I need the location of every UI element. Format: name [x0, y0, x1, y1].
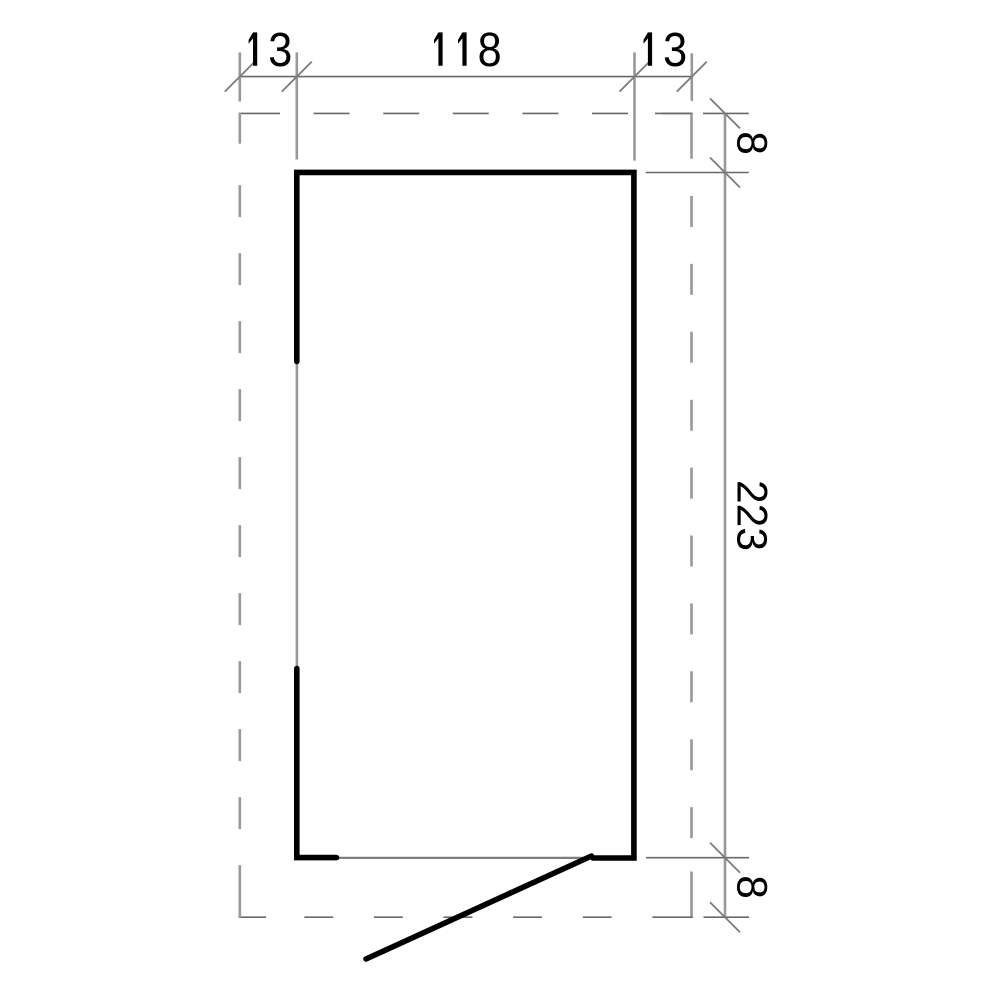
svg-text:3: 3 — [663, 23, 687, 77]
svg-text:3: 3 — [268, 23, 292, 77]
svg-text:223: 223 — [727, 480, 774, 551]
svg-text:8: 8 — [478, 23, 502, 77]
svg-text:8: 8 — [727, 875, 774, 899]
svg-text:8: 8 — [727, 131, 774, 155]
